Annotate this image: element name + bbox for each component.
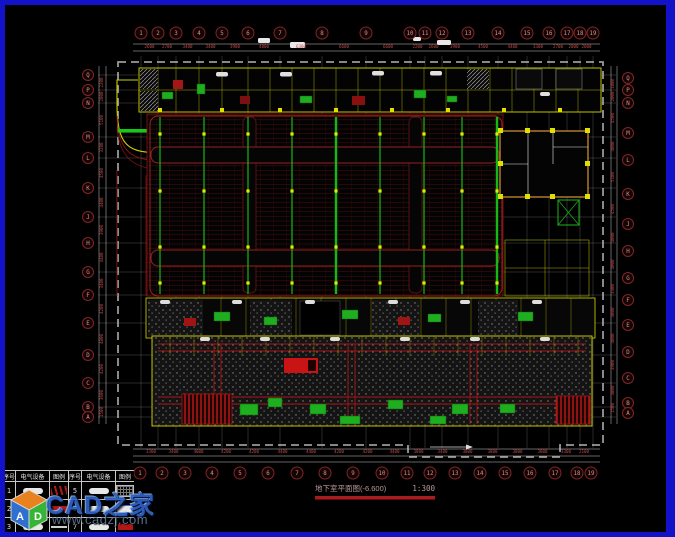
legend-symbol-dash [51,526,67,528]
svg-text:10: 10 [407,31,414,37]
svg-text:13: 13 [465,31,472,37]
parking-area [147,114,503,296]
svg-text:4200: 4200 [334,449,345,454]
svg-text:G: G [86,270,90,276]
svg-text:4500: 4500 [478,44,489,49]
svg-text:5100: 5100 [99,114,104,125]
legend-symbol-cell [16,518,50,532]
legend-header: 序号 [69,471,82,482]
svg-text:3400: 3400 [182,44,193,49]
svg-text:2200: 2200 [412,44,423,49]
svg-text:M: M [86,135,90,141]
svg-text:A: A [86,415,90,421]
legend-no: 7 [69,518,82,532]
svg-text:4200: 4200 [99,303,104,314]
svg-text:2000: 2000 [568,44,579,49]
legend-no: 2 [3,500,16,518]
svg-text:4400: 4400 [99,197,104,208]
svg-text:4: 4 [197,31,201,37]
svg-text:N: N [86,101,90,107]
svg-text:3800: 3800 [512,449,523,454]
svg-text:L: L [86,156,90,162]
svg-text:4400: 4400 [99,252,104,263]
svg-text:13: 13 [452,471,459,477]
svg-text:M: M [626,131,630,137]
svg-text:4200: 4200 [249,449,260,454]
svg-text:3: 3 [183,471,187,477]
svg-text:Q: Q [626,76,630,82]
svg-text:6: 6 [266,471,270,477]
legend-symbol-pill [89,506,109,512]
top-room-band [139,68,601,112]
svg-text:1: 1 [138,471,142,477]
svg-text:2700: 2700 [162,44,173,49]
svg-text:5: 5 [220,31,224,37]
svg-text:4000: 4000 [610,333,615,344]
svg-text:6600: 6600 [339,44,350,49]
svg-text:14: 14 [495,31,502,37]
svg-text:17: 17 [564,31,571,37]
svg-text:3600: 3600 [99,389,104,400]
dimensions-top: 2600270034003400390048006300660066002200… [144,44,592,49]
svg-text:J: J [86,215,90,221]
legend-symbol-cell [116,482,134,500]
svg-text:9: 9 [364,31,368,37]
svg-text:D: D [86,353,90,359]
svg-text:12: 12 [439,31,446,37]
svg-text:3400: 3400 [99,278,104,289]
svg-text:P: P [86,88,90,94]
legend-header: 序号 [3,471,16,482]
legend-header: 电气设备 [82,471,116,482]
svg-text:3300: 3300 [533,44,544,49]
svg-text:3900: 3900 [450,44,461,49]
stair-hatch [140,91,158,111]
svg-text:P: P [626,88,630,94]
svg-text:6300: 6300 [296,44,307,49]
svg-text:15: 15 [502,471,509,477]
legend-table: 序号电气设备图例序号电气设备图例15263748 [2,470,134,532]
grid-bubbles-top: 12345678910111213141516171819 [135,27,599,39]
svg-text:16: 16 [546,31,553,37]
legend-symbol-pill [89,488,109,494]
legend-no: 3 [3,518,16,532]
svg-text:2000: 2000 [610,91,615,102]
svg-text:3900: 3900 [230,44,241,49]
svg-text:H: H [626,249,630,255]
svg-text:3800: 3800 [537,449,548,454]
svg-text:4: 4 [210,471,214,477]
svg-text:K: K [86,186,90,192]
legend-header: 电气设备 [16,471,50,482]
svg-text:B: B [626,401,630,407]
svg-text:F: F [626,298,630,304]
svg-text:D: D [626,350,630,356]
svg-text:17: 17 [552,471,559,477]
svg-text:4500: 4500 [610,203,615,214]
legend-symbol-cell [116,518,134,532]
shaft-x-box [558,200,579,225]
svg-text:3300: 3300 [561,449,572,454]
svg-text:15: 15 [524,31,531,37]
legend-no: 1 [3,482,16,500]
legend-no: 6 [69,500,82,518]
dimensions-left: 2200200051003200450044003900440034004200… [99,77,104,417]
svg-text:6: 6 [246,31,250,37]
svg-text:E: E [86,321,90,327]
red-striped-room [556,396,590,424]
svg-text:1: 1 [139,31,143,37]
svg-text:3900: 3900 [610,359,615,370]
legend-symbol-pill [23,524,43,530]
stair-hatch [140,69,158,89]
cad-drawing-viewport: 12345678910111213141516171819 1234567891… [0,0,675,537]
mid-room-band [146,298,595,338]
svg-text:E: E [626,323,630,329]
svg-text:4200: 4200 [221,449,232,454]
svg-text:2600: 2600 [428,44,439,49]
dimensions-bottom: 3300340040004200420044004400420042004400… [146,449,590,454]
svg-text:5100: 5100 [610,171,615,182]
legend-symbol-red-bar [118,524,133,530]
svg-text:19: 19 [590,31,597,37]
svg-text:2000: 2000 [581,44,592,49]
svg-text:3800: 3800 [487,449,498,454]
svg-text:18: 18 [577,31,584,37]
svg-text:H: H [86,241,90,247]
legend-symbol-cell [50,482,69,500]
driving-aisle [151,250,499,266]
legend-symbol-red-glyph [51,486,67,495]
svg-text:12: 12 [427,471,434,477]
svg-text:3300: 3300 [146,449,157,454]
svg-text:5: 5 [238,471,242,477]
svg-text:11: 11 [404,471,411,477]
svg-text:10: 10 [379,471,386,477]
legend-symbol-green-box [26,503,40,514]
svg-text:2000: 2000 [99,91,104,102]
legend-symbol-pill [89,524,109,530]
grid-bubbles-right: QPNMLKJHGFEDCBA [623,73,634,419]
legend-symbol-cell [16,500,50,518]
legend-symbol-red-bar [52,506,67,512]
title-underline [315,496,435,500]
svg-text:8: 8 [320,31,324,37]
svg-text:16: 16 [527,471,534,477]
svg-text:7: 7 [295,471,299,477]
svg-text:2700: 2700 [553,44,564,49]
svg-text:8: 8 [323,471,327,477]
svg-text:3400: 3400 [437,449,448,454]
svg-text:3800: 3800 [610,307,615,318]
svg-text:4000: 4000 [610,232,615,243]
legend-symbol-cell [116,500,134,518]
legend-symbol-cell [50,500,69,518]
right-equipment-block [498,128,590,296]
svg-text:F: F [86,293,90,299]
red-striped-room [182,394,232,424]
svg-text:1500: 1500 [99,406,104,417]
svg-text:3200: 3200 [99,142,104,153]
svg-text:4200: 4200 [99,363,104,374]
svg-text:11: 11 [422,31,429,37]
svg-text:C: C [626,376,630,382]
svg-text:2600: 2600 [144,44,155,49]
svg-text:B: B [86,405,90,411]
svg-text:4400: 4400 [389,449,400,454]
svg-text:3800: 3800 [413,449,424,454]
svg-text:L: L [626,158,630,164]
drawing-scale: 1:300 [412,484,435,493]
svg-text:4500: 4500 [99,167,104,178]
legend-symbol-blue-pill [116,505,134,513]
svg-text:4800: 4800 [259,44,270,49]
svg-text:3400: 3400 [168,449,179,454]
svg-text:2200: 2200 [99,77,104,88]
svg-text:3: 3 [174,31,178,37]
svg-text:J: J [626,222,630,228]
svg-text:C: C [86,381,90,387]
legend-symbol-cell [16,482,50,500]
svg-text:19: 19 [588,471,595,477]
grid-bubbles-bottom: 12345678910111213141516171819 [134,467,597,479]
podium-hatched-block [152,336,592,426]
svg-text:4000: 4000 [610,259,615,270]
svg-text:4000: 4000 [193,449,204,454]
drawing-title-block: 地下室平面图(-6.600) 1:300 [315,483,435,500]
legend-header: 图例 [50,471,69,482]
svg-text:3400: 3400 [205,44,216,49]
svg-text:4400: 4400 [306,449,317,454]
svg-text:1500: 1500 [610,402,615,413]
legend-no: 5 [69,482,82,500]
legend-symbol-cell [50,518,69,532]
svg-text:4400: 4400 [277,449,288,454]
svg-text:4500: 4500 [610,112,615,123]
svg-text:3300: 3300 [610,283,615,294]
svg-text:14: 14 [477,471,484,477]
svg-text:3800: 3800 [610,385,615,396]
legend-symbol-cell [82,482,116,500]
svg-text:4200: 4200 [362,449,373,454]
svg-text:4400: 4400 [507,44,518,49]
svg-text:3800: 3800 [462,449,473,454]
floor-plan-canvas: 12345678910111213141516171819 1234567891… [0,0,675,537]
stair-hatch [467,69,489,89]
legend-symbol-hatch-box [116,485,134,497]
legend-symbol-cell [82,500,116,518]
svg-text:K: K [626,192,630,198]
svg-text:7: 7 [278,31,282,37]
grid-bubbles-left: QPNMLKJHGFEDCBA [83,70,94,423]
svg-text:G: G [626,276,630,282]
svg-text:9: 9 [351,471,355,477]
svg-text:4000: 4000 [610,141,615,152]
svg-text:3900: 3900 [99,224,104,235]
svg-text:2: 2 [156,31,160,37]
driving-aisle [151,147,499,163]
svg-text:2: 2 [160,471,164,477]
svg-text:A: A [626,411,630,417]
svg-text:2100: 2100 [579,449,590,454]
svg-text:6600: 6600 [383,44,394,49]
legend-symbol-cell [82,518,116,532]
drawing-title: 地下室平面图(-6.600) [315,483,386,494]
svg-text:1800: 1800 [610,78,615,89]
svg-text:18: 18 [574,471,581,477]
svg-text:Q: Q [86,73,90,79]
svg-text:N: N [626,101,630,107]
legend-symbol-pill [23,488,43,494]
svg-text:4800: 4800 [99,333,104,344]
legend-header: 图例 [116,471,134,482]
